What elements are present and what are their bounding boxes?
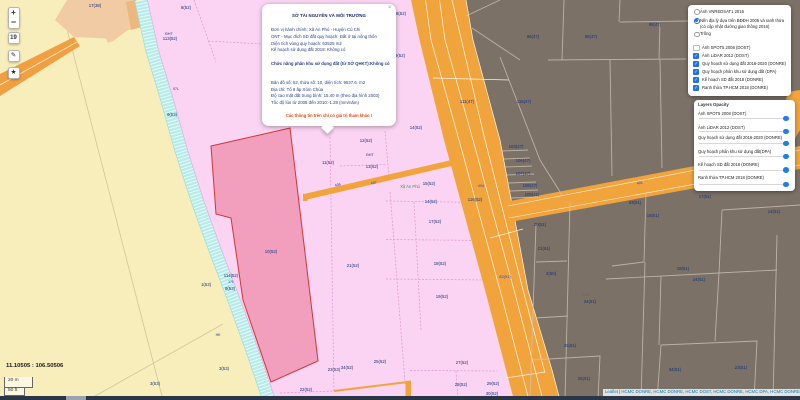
svg-text:23(51): 23(51)	[735, 365, 748, 370]
svg-text:27(52): 27(52)	[456, 360, 469, 365]
svg-text:2(50): 2(50)	[546, 271, 557, 276]
svg-text:9(53): 9(53)	[225, 286, 236, 291]
svg-text:17(51): 17(51)	[699, 194, 712, 199]
svg-text:25(51): 25(51)	[564, 343, 577, 348]
svg-text:26(51): 26(51)	[578, 376, 591, 381]
svg-text:24(51): 24(51)	[693, 277, 706, 282]
svg-text:22(52): 22(52)	[300, 387, 313, 392]
svg-text:115(47): 115(47)	[517, 99, 532, 104]
svg-text:494: 494	[478, 184, 484, 188]
svg-text:171: 171	[228, 280, 234, 284]
svg-text:8(52): 8(52)	[396, 11, 407, 16]
svg-text:3(53): 3(53)	[219, 366, 230, 371]
svg-text:3(53): 3(53)	[150, 381, 161, 386]
svg-text:18(52): 18(52)	[434, 261, 447, 266]
svg-text:109(41): 109(41)	[525, 192, 540, 197]
svg-text:19(51): 19(51)	[677, 266, 690, 271]
svg-text:23(53): 23(53)	[328, 367, 341, 372]
svg-text:07L: 07L	[173, 87, 179, 91]
svg-text:Xã An Phú: Xã An Phú	[400, 184, 420, 189]
svg-text:34(51): 34(51)	[669, 367, 682, 372]
svg-text:1(53): 1(53)	[201, 282, 212, 287]
svg-text:88(47): 88(47)	[649, 22, 662, 27]
svg-text:85(47): 85(47)	[585, 34, 598, 39]
svg-text:15(52): 15(52)	[423, 181, 436, 186]
svg-text:103(47): 103(47)	[509, 144, 524, 149]
svg-text:107(47): 107(47)	[516, 171, 531, 176]
svg-text:14(51): 14(51)	[768, 209, 781, 214]
svg-text:17(52): 17(52)	[429, 219, 442, 224]
svg-text:10(52): 10(52)	[265, 249, 278, 254]
svg-text:17(38): 17(38)	[89, 3, 102, 8]
svg-text:114(52): 114(52)	[224, 273, 239, 278]
svg-text:113(52): 113(52)	[163, 36, 178, 41]
svg-text:21(52): 21(52)	[347, 263, 360, 268]
svg-text:106(47): 106(47)	[516, 158, 531, 163]
svg-text:63(51): 63(51)	[629, 200, 642, 205]
svg-text:82(51): 82(51)	[499, 274, 511, 279]
svg-text:28(52): 28(52)	[455, 382, 468, 387]
svg-text:9(52): 9(52)	[395, 53, 406, 58]
svg-text:12(52): 12(52)	[360, 138, 373, 143]
svg-text:HK: HK	[216, 333, 222, 337]
svg-text:11(52): 11(52)	[322, 160, 335, 165]
svg-text:ĐHT: ĐHT	[366, 153, 374, 157]
svg-text:24(51): 24(51)	[584, 299, 597, 304]
svg-text:LUC: LUC	[583, 293, 590, 297]
svg-text:29(52): 29(52)	[487, 381, 500, 386]
svg-text:8(52): 8(52)	[181, 5, 192, 10]
svg-text:21(51): 21(51)	[538, 246, 551, 251]
svg-text:14(52): 14(52)	[410, 125, 423, 130]
svg-text:25(52): 25(52)	[374, 359, 387, 364]
svg-text:111(47): 111(47)	[460, 99, 475, 104]
svg-text:34(52): 34(52)	[341, 365, 354, 370]
svg-text:116(52): 116(52)	[468, 197, 483, 202]
svg-text:13(52): 13(52)	[366, 164, 379, 169]
svg-text:14(52): 14(52)	[425, 199, 438, 204]
svg-text:9(53): 9(53)	[167, 112, 178, 117]
svg-text:18(51): 18(51)	[647, 213, 660, 218]
svg-text:19(52): 19(52)	[436, 294, 449, 299]
svg-text:86(47): 86(47)	[527, 34, 540, 39]
svg-text:108(47): 108(47)	[523, 183, 538, 188]
svg-text:20(51): 20(51)	[534, 222, 547, 227]
